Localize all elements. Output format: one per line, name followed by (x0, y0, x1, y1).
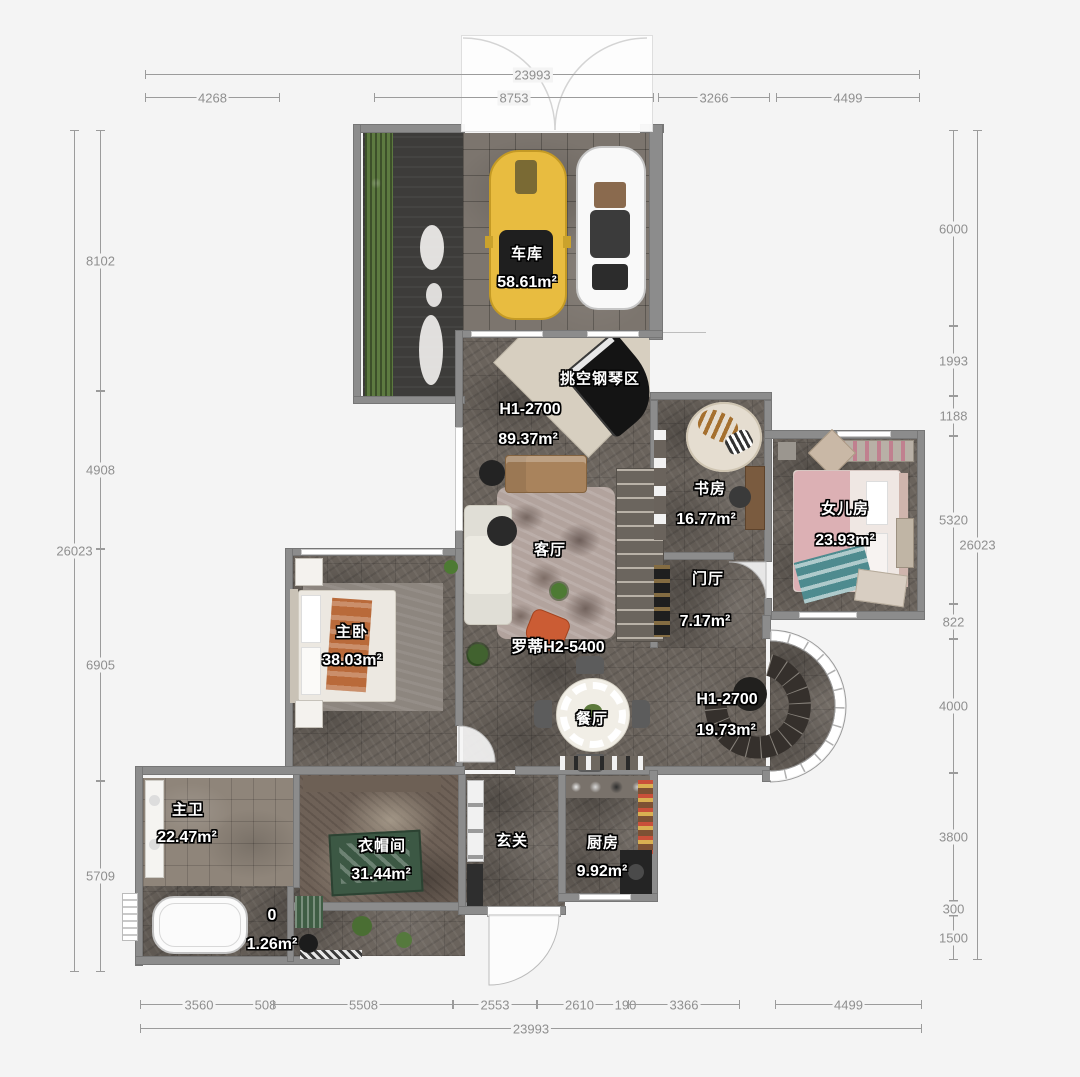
car-roof (594, 182, 626, 208)
label-living: 客厅 (534, 539, 566, 560)
yellow-sports-car[interactable] (489, 150, 567, 320)
wall-driveway-bottom[interactable] (353, 396, 465, 404)
stool-black[interactable] (299, 934, 318, 953)
car-hood-vent (515, 160, 537, 194)
dim-bottom-seg: 5508 (273, 1000, 454, 1009)
label-sofa-model: 罗蒂H2-5400 (511, 633, 604, 657)
window-living-west[interactable] (456, 428, 462, 530)
dim-right-seg: 5320 (949, 435, 958, 605)
dim-top-seg: 8753 (374, 93, 654, 102)
floor-plan-canvas: 23993 4268 8753 3266 4499 26023 8102 490… (0, 0, 1080, 1077)
study-shelf-items (654, 430, 666, 540)
bed-throw-orange (326, 598, 372, 693)
dim-right-seg: 3800 (949, 772, 958, 902)
dim-bottom-total: 23993 (140, 1024, 922, 1033)
label-daughter-area: 23.93m² (815, 532, 875, 550)
wall-master-east[interactable] (455, 548, 463, 726)
dim-right-seg: 822 (949, 603, 958, 640)
foyer-cabinet[interactable] (654, 565, 670, 637)
dim-right-seg: 1993 (949, 325, 958, 397)
wall-entry-kitchen[interactable] (558, 774, 566, 902)
garage-door-panel[interactable] (461, 35, 653, 132)
label-study-area: 16.77m² (676, 511, 736, 529)
dim-top-seg: 4268 (145, 93, 280, 102)
stepping-stone (420, 225, 444, 270)
towel-shelf[interactable] (122, 893, 138, 941)
plant-cloak[interactable] (352, 916, 372, 936)
dim-left-seg: 8102 (96, 130, 105, 392)
dim-top-seg: 3266 (658, 93, 770, 102)
label-dining-area: 19.73m² (696, 722, 756, 740)
window-kitchen-bottom[interactable] (580, 895, 630, 899)
label-living-code: H1-2700 (499, 401, 560, 419)
dining-chair[interactable] (632, 700, 650, 728)
cloak-shelf[interactable] (303, 776, 441, 792)
label-study: 书房 (694, 478, 726, 499)
dim-bottom-seg: 2610 (536, 1000, 623, 1009)
car-rear-window (592, 264, 628, 290)
window-daughter-bottom[interactable] (800, 613, 856, 617)
car-mirror (563, 236, 571, 248)
dim-top-seg: 4499 (776, 93, 920, 102)
plant-living[interactable] (551, 583, 567, 599)
tub-inner (159, 903, 241, 947)
dim-left-total: 26023 (70, 130, 79, 972)
label-master-area: 38.03m² (322, 652, 382, 670)
label-garage: 车库 (511, 243, 543, 264)
sofa-brown[interactable] (505, 455, 587, 493)
sink (149, 795, 160, 806)
master-bed[interactable] (298, 590, 396, 702)
entry-cabinet[interactable] (467, 780, 484, 862)
dim-right-seg: 1188 (949, 395, 958, 437)
plant-cloak[interactable] (396, 932, 412, 948)
bay-floor[interactable] (770, 634, 842, 778)
wall-daughter-right[interactable] (917, 430, 925, 620)
coffee-table-black[interactable] (487, 516, 517, 546)
dim-bottom-seg: 3560 (140, 1000, 258, 1009)
nightstand[interactable] (295, 700, 323, 728)
wall-entry-bottom-left[interactable] (458, 906, 488, 915)
wall-driveway-left[interactable] (353, 124, 361, 404)
dim-bottom-seg: 4499 (775, 1000, 922, 1009)
label-kitchen-area: 9.92m² (577, 863, 628, 881)
dim-top-total: 23993 (145, 70, 920, 79)
window-master-top[interactable] (302, 550, 442, 554)
plant-dining[interactable] (468, 644, 488, 664)
label-piano-zone: 挑空钢琴区 (560, 368, 640, 389)
front-door-leaf[interactable] (487, 906, 561, 917)
burner (628, 864, 644, 880)
label-closet-area: 1.26m² (247, 936, 298, 954)
dim-right-seg: 1500 (949, 915, 958, 960)
bed-pillow (866, 481, 888, 525)
front-door-arc[interactable] (489, 915, 559, 985)
wall-garage-right[interactable] (649, 124, 663, 340)
label-cloak: 衣帽间 (358, 835, 406, 856)
dining-chair[interactable] (576, 656, 604, 674)
desk-chair[interactable] (729, 486, 751, 508)
dim-right-seg: 6000 (949, 130, 958, 327)
floor-tile-gray (778, 442, 796, 460)
wall-master-bottom[interactable] (135, 766, 465, 775)
wall-bay-bottom-stub[interactable] (762, 770, 771, 782)
label-master-bath: 主卫 (172, 799, 204, 820)
label-dining: 餐厅 (576, 708, 608, 729)
label-master-bath-area: 22.47m² (157, 829, 217, 847)
dim-right-seg: 4000 (949, 638, 958, 774)
dim-left-seg: 5709 (96, 780, 105, 972)
plant-master[interactable] (444, 560, 458, 574)
sideboard[interactable] (560, 756, 645, 770)
dresser[interactable] (896, 518, 914, 568)
window-garage-living-2[interactable] (588, 332, 638, 336)
hedge-strip[interactable] (365, 130, 393, 396)
label-cloak-area: 31.44m² (351, 866, 411, 884)
label-dining-code: H1-2700 (696, 691, 757, 709)
stepping-stone (419, 315, 443, 385)
dim-bottom-seg: 2553 (452, 1000, 538, 1009)
study-rug[interactable] (686, 402, 762, 472)
stepping-stone (426, 283, 442, 307)
wall-daughter-west[interactable] (764, 438, 772, 562)
wall-top-left[interactable] (353, 124, 465, 133)
label-living-area: 89.37m² (498, 431, 558, 449)
dim-left-seg: 6905 (96, 548, 105, 782)
dim-right-total: 26023 (973, 130, 982, 960)
car-windshield (590, 210, 630, 258)
label-master: 主卧 (336, 621, 368, 642)
label-entry: 玄关 (496, 830, 528, 851)
label-kitchen: 厨房 (587, 832, 619, 853)
extension-line (658, 332, 706, 333)
dim-left-seg: 4908 (96, 390, 105, 550)
headboard (290, 589, 298, 703)
label-foyer: 门厅 (692, 568, 724, 589)
wall-study-top[interactable] (650, 392, 772, 400)
wall-bay-top-stub[interactable] (762, 615, 771, 639)
dining-chair[interactable] (534, 700, 552, 728)
wall-entry-west[interactable] (458, 774, 466, 914)
bench[interactable] (854, 569, 908, 608)
closet-mat-green[interactable] (295, 896, 323, 928)
bed-pillow (301, 595, 321, 643)
pantry-shelf[interactable] (638, 780, 653, 854)
window-daughter-top[interactable] (838, 432, 890, 436)
label-closet: 0 (268, 907, 277, 925)
side-table-black[interactable] (479, 460, 505, 486)
nightstand[interactable] (295, 558, 323, 586)
car-mirror (485, 236, 493, 248)
white-car[interactable] (576, 146, 646, 310)
shoe-cabinet[interactable] (467, 864, 483, 906)
bed-pillow (301, 647, 321, 695)
wall-bath-cloak[interactable] (293, 774, 300, 888)
label-foyer-area: 7.17m² (680, 613, 731, 631)
label-daughter: 女儿房 (821, 498, 869, 519)
bathtub[interactable] (152, 896, 248, 954)
label-garage-area: 58.61m² (497, 274, 557, 292)
window-garage-living-1[interactable] (472, 332, 542, 336)
dim-bottom-seg: 3366 (628, 1000, 740, 1009)
